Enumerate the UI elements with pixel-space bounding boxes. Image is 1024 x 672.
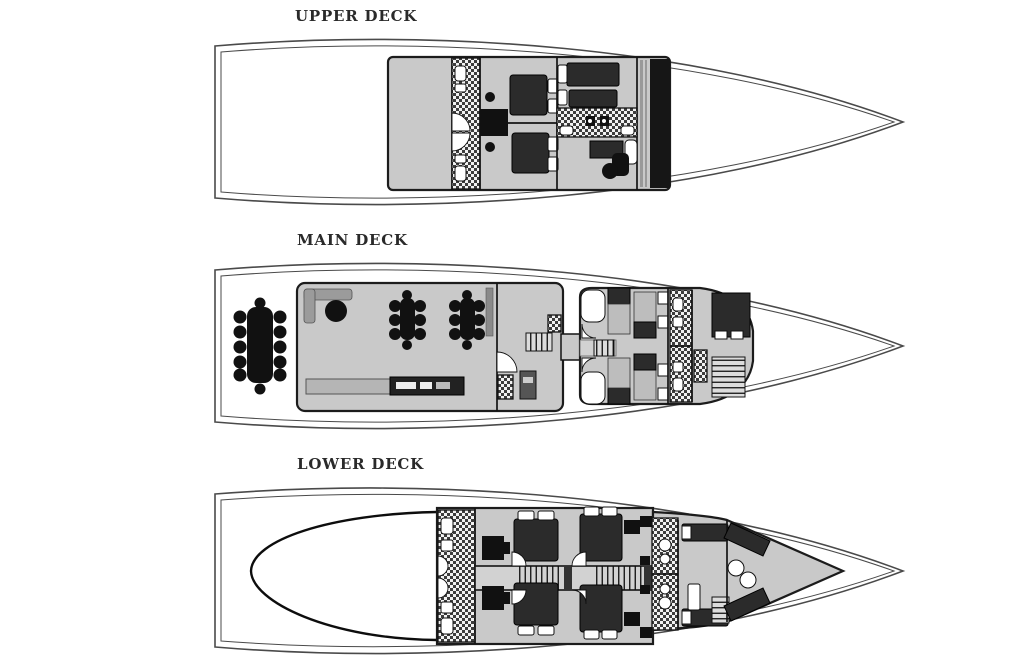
galley-floor bbox=[694, 350, 707, 382]
pillow bbox=[518, 511, 534, 520]
appliance bbox=[715, 331, 727, 339]
landing bbox=[564, 566, 572, 590]
desk bbox=[504, 542, 510, 554]
side-table bbox=[624, 520, 640, 534]
pillow bbox=[538, 511, 554, 520]
locker bbox=[640, 585, 650, 594]
bed-head bbox=[608, 288, 630, 304]
appliance bbox=[523, 377, 533, 383]
stool bbox=[485, 92, 495, 102]
pillow bbox=[602, 630, 617, 639]
bed bbox=[510, 75, 547, 115]
bed bbox=[569, 90, 617, 107]
chair bbox=[274, 369, 287, 382]
bed-head bbox=[608, 388, 630, 404]
chair bbox=[255, 384, 266, 395]
galley-floor bbox=[548, 315, 561, 332]
pillow bbox=[682, 526, 691, 539]
toilet bbox=[455, 166, 466, 181]
main-deck-label: MAIN DECK bbox=[297, 231, 408, 249]
appliance bbox=[420, 382, 432, 389]
aft-dining-set bbox=[234, 298, 287, 395]
desk bbox=[482, 586, 504, 610]
toilet bbox=[660, 584, 670, 594]
toilet bbox=[441, 518, 453, 534]
chair bbox=[274, 356, 287, 369]
upper-deck-label: UPPER DECK bbox=[295, 7, 417, 25]
pillow bbox=[538, 626, 554, 635]
appliance bbox=[436, 382, 450, 389]
sink bbox=[659, 539, 671, 551]
nightstand bbox=[658, 388, 668, 400]
chair bbox=[414, 300, 426, 312]
toilet bbox=[673, 298, 683, 311]
chair bbox=[414, 328, 426, 340]
bed bbox=[567, 63, 619, 86]
wardrobe bbox=[581, 372, 605, 404]
nightstand bbox=[658, 292, 668, 304]
chair bbox=[274, 326, 287, 339]
chair bbox=[449, 328, 461, 340]
sink bbox=[673, 317, 683, 327]
main-deck-plan: MAIN DECK bbox=[215, 231, 903, 429]
chair bbox=[274, 341, 287, 354]
desk bbox=[504, 592, 510, 604]
locker bbox=[640, 516, 652, 527]
helm-chair bbox=[602, 163, 618, 179]
cabinet bbox=[688, 584, 700, 610]
appliance bbox=[396, 382, 416, 389]
toilet bbox=[673, 378, 683, 391]
pillow bbox=[602, 507, 617, 516]
pillow bbox=[584, 507, 599, 516]
bed bbox=[608, 358, 630, 388]
chair bbox=[234, 326, 247, 339]
wheelhouse-console bbox=[650, 59, 670, 188]
sink bbox=[659, 597, 671, 609]
sink bbox=[455, 84, 466, 92]
pillow bbox=[584, 630, 599, 639]
lower-deck-label: LOWER DECK bbox=[297, 455, 424, 473]
toilet bbox=[660, 554, 670, 564]
seat bbox=[728, 560, 744, 576]
pillow bbox=[682, 611, 691, 624]
locker bbox=[640, 556, 650, 565]
bar-table bbox=[325, 300, 347, 322]
seat bbox=[740, 572, 756, 588]
galley-counter bbox=[712, 293, 750, 337]
console-trim bbox=[645, 60, 647, 187]
chair bbox=[449, 300, 461, 312]
wall-unit bbox=[486, 288, 493, 336]
passage bbox=[561, 334, 582, 360]
pillow bbox=[518, 626, 534, 635]
sideboard bbox=[306, 379, 390, 394]
cabinet bbox=[498, 375, 513, 399]
chair bbox=[234, 369, 247, 382]
lower-deck-plan: LOWER DECK bbox=[215, 455, 903, 654]
chair bbox=[402, 340, 412, 350]
wardrobe bbox=[581, 290, 605, 322]
chair bbox=[255, 298, 266, 309]
dining-table bbox=[400, 298, 415, 340]
fixture-dot bbox=[602, 119, 607, 124]
bar-counter bbox=[304, 289, 315, 323]
upper-deck-plan: UPPER DECK bbox=[215, 7, 903, 205]
bed bbox=[608, 304, 630, 334]
cabinet bbox=[520, 371, 536, 399]
chair bbox=[274, 311, 287, 324]
stool bbox=[485, 142, 495, 152]
side-table bbox=[624, 612, 640, 626]
chair bbox=[414, 314, 426, 326]
pillow bbox=[558, 65, 567, 83]
sink bbox=[673, 362, 683, 372]
pillow bbox=[558, 90, 567, 105]
bed bbox=[512, 133, 549, 173]
chair bbox=[234, 356, 247, 369]
dining-table bbox=[460, 298, 475, 340]
bed bbox=[634, 292, 656, 322]
appliance bbox=[731, 331, 743, 339]
chair bbox=[389, 300, 401, 312]
chair bbox=[389, 328, 401, 340]
dining-table bbox=[247, 307, 273, 383]
chair bbox=[234, 311, 247, 324]
fixture-dot bbox=[588, 119, 593, 124]
console-trim bbox=[640, 60, 643, 187]
chair bbox=[234, 341, 247, 354]
stairs-treads bbox=[594, 340, 614, 356]
stairs-down-treads bbox=[712, 357, 745, 397]
deck-plan-svg: UPPER DECK bbox=[0, 0, 1024, 672]
sink bbox=[441, 540, 453, 551]
chair bbox=[462, 340, 472, 350]
toilet bbox=[441, 618, 453, 634]
stairs-up-treads bbox=[526, 333, 552, 351]
nightstand bbox=[658, 364, 668, 376]
nightstand bbox=[658, 316, 668, 328]
bed-head bbox=[634, 322, 656, 338]
chair bbox=[449, 314, 461, 326]
bed-head bbox=[634, 354, 656, 370]
desk bbox=[480, 109, 508, 136]
sink bbox=[621, 126, 634, 135]
desk bbox=[482, 536, 504, 560]
sink bbox=[455, 155, 466, 163]
chair bbox=[389, 314, 401, 326]
deck-plan-page: UPPER DECK bbox=[0, 0, 1024, 672]
sink bbox=[441, 602, 453, 613]
bed bbox=[634, 370, 656, 400]
double-bed bbox=[514, 583, 558, 625]
toilet bbox=[455, 66, 466, 81]
locker bbox=[640, 627, 652, 638]
sink bbox=[560, 126, 573, 135]
